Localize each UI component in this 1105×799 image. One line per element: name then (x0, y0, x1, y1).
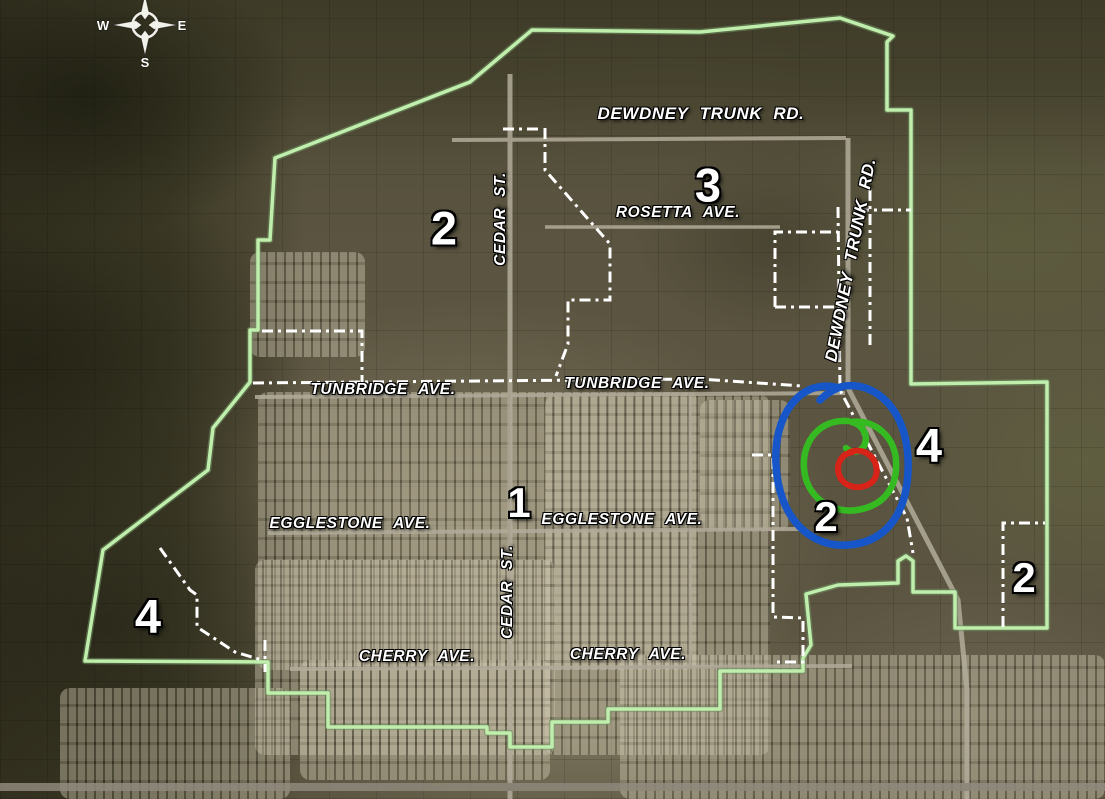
street-label-tunbridge-ave-east: TUNBRIDGE AVE. (564, 375, 709, 393)
street-label-cedar-st-north: CEDAR ST. (492, 172, 510, 266)
street-label-egglestone-ave-west: EGGLESTONE AVE. (269, 515, 430, 533)
zone-line-4-west (160, 548, 262, 660)
zone-label-2-circled: 2 (814, 493, 837, 541)
highlight-circle-red (838, 451, 877, 488)
compass-south-label: S (141, 55, 150, 70)
compass-east-point (148, 21, 178, 30)
zone-label-4-west: 4 (135, 589, 161, 644)
street-label-tunbridge-ave-west: TUNBRIDGE AVE. (310, 381, 455, 399)
zone-line-2-3-divider (545, 128, 610, 376)
compass-west-label: W (97, 18, 110, 33)
road-dewdney-trunk-top (452, 138, 846, 140)
highlight-circle-green-hook (846, 422, 866, 452)
compass-rose-icon: W E S (97, 0, 187, 70)
street-label-cherry-ave-east: CHERRY AVE. (570, 646, 686, 664)
street-label-cedar-st-south: CEDAR ST. (499, 545, 517, 639)
compass-south-point (141, 30, 150, 56)
zone-label-3-north: 3 (695, 158, 721, 213)
map-overlay: W E S (0, 0, 1105, 799)
street-label-rosetta-ave: ROSETTA AVE. (616, 204, 740, 222)
zone-label-4-east: 4 (916, 418, 942, 473)
street-label-dewdney-trunk-rd-top: DEWDNEY TRUNK RD. (597, 104, 804, 124)
compass-west-point (112, 21, 142, 30)
zone-label-2-east: 2 (1012, 554, 1035, 602)
zone-label-2-northwest: 2 (431, 201, 457, 256)
zone-line-3-4-divider (775, 232, 838, 307)
compass-north-point (141, 0, 150, 20)
aerial-map: W E S DEWDNEY TRUNK RD. ROSETTA AVE. TUN… (0, 0, 1105, 799)
compass-east-label: E (178, 18, 187, 33)
street-label-egglestone-ave-east: EGGLESTONE AVE. (541, 511, 702, 529)
zone-line-2-inner (262, 331, 362, 383)
zone-label-1-central: 1 (507, 479, 530, 527)
street-label-cherry-ave-west: CHERRY AVE. (359, 648, 475, 666)
